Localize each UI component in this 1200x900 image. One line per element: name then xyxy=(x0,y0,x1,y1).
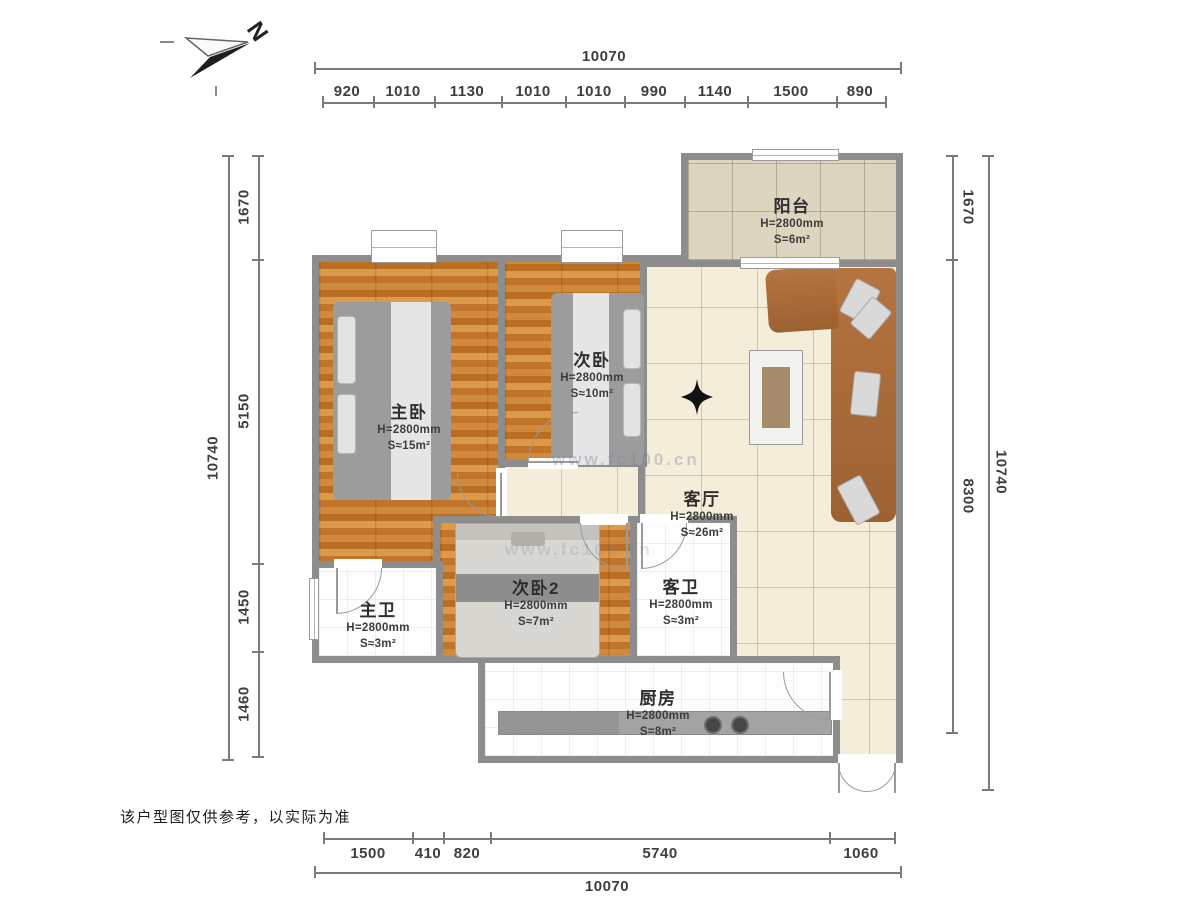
room-name: 次卧2 xyxy=(504,578,567,599)
dim-left-seg: 1450 xyxy=(236,589,253,624)
watermark-text: www.fc100.cn xyxy=(505,540,653,560)
dim-right-total: 10740 xyxy=(993,450,1010,494)
bath-window xyxy=(309,578,319,640)
room-label-balcony: 阳台 H=2800mm S=6m² xyxy=(760,196,823,248)
dim-bottom-seg: 1500 xyxy=(350,845,385,862)
room-area: S≈10m² xyxy=(560,387,623,403)
room-area: S≈3m² xyxy=(346,637,409,653)
room-label-master-bath: 主卫 H=2800mm S≈3m² xyxy=(346,600,409,652)
dim-top-seg: 1500 xyxy=(773,83,808,100)
disclaimer-text: 该户型图仅供参考，以实际为准 xyxy=(120,806,351,827)
room-name: 厨房 xyxy=(626,688,689,709)
room-height: H=2800mm xyxy=(760,217,823,233)
dim-top-seg: 1140 xyxy=(698,83,733,100)
dim-right-seg: 1670 xyxy=(960,189,977,224)
room-label-kitchen: 厨房 H=2800mm S=8m² xyxy=(626,688,689,740)
room-name: 客厅 xyxy=(670,489,733,510)
door-leaf xyxy=(829,672,831,720)
room-height: H=2800mm xyxy=(560,371,623,387)
door-leaf xyxy=(894,763,896,793)
balcony-window xyxy=(752,149,839,161)
dim-top-seg: 890 xyxy=(847,83,874,100)
ceiling-fan-icon xyxy=(677,377,717,417)
room-height: H=2800mm xyxy=(670,510,733,526)
room-area: S≈15m² xyxy=(377,439,440,455)
dim-bottom-seg: 5740 xyxy=(642,845,677,862)
dim-top-total: 10070 xyxy=(582,48,626,65)
wall-segment xyxy=(640,255,685,265)
compass-north-arrow-icon xyxy=(150,8,290,98)
door-leaf xyxy=(336,568,338,614)
room-label-bedroom-2: 次卧 H=2800mm S≈10m² xyxy=(560,350,623,402)
dim-top-seg: 1010 xyxy=(385,83,420,100)
room-name: 次卧 xyxy=(560,350,623,371)
balcony-sliding-door xyxy=(740,257,840,269)
room-height: H=2800mm xyxy=(346,621,409,637)
room-name: 主卧 xyxy=(377,402,440,423)
sofa-pillow xyxy=(850,371,881,418)
room-label-master-bedroom: 主卧 H=2800mm S≈15m² xyxy=(377,402,440,454)
door-gap-kitchen xyxy=(831,670,842,720)
sofa-top-arm xyxy=(765,266,839,334)
room-label-guest-bath: 客卫 H=2800mm S≈3m² xyxy=(649,577,712,629)
room-height: H=2800mm xyxy=(626,709,689,725)
dim-bottom-seg: 820 xyxy=(454,845,481,862)
dim-left-seg: 1670 xyxy=(236,189,253,224)
dim-left-seg: 1460 xyxy=(236,686,253,721)
bay-window xyxy=(371,230,437,263)
room-height: H=2800mm xyxy=(377,423,440,439)
room-area: S≈7m² xyxy=(504,615,567,631)
dim-top-seg: 1130 xyxy=(450,83,485,100)
dim-top-seg: 1010 xyxy=(576,83,611,100)
room-name: 客卫 xyxy=(649,577,712,598)
dim-right-seg: 8300 xyxy=(960,478,977,513)
room-name: 主卫 xyxy=(346,600,409,621)
dim-bottom-total: 10070 xyxy=(585,878,629,895)
floor-plan-canvas: N 10070 920 1010 1130 1010 1010 990 1140… xyxy=(0,0,1200,900)
watermark-text: www.fc100.cn xyxy=(552,450,700,470)
coffee-table xyxy=(749,350,803,445)
room-area: S≈26m² xyxy=(670,526,733,542)
dim-left-total: 10740 xyxy=(205,436,222,480)
stove-burner-icon xyxy=(731,716,749,734)
dim-bottom-seg: 1060 xyxy=(843,845,878,862)
dim-top-seg: 1010 xyxy=(515,83,550,100)
entry-door-arc xyxy=(838,763,867,792)
dim-top-seg: 990 xyxy=(641,83,668,100)
room-area: S=8m² xyxy=(626,725,689,741)
entry-door-arc xyxy=(867,763,896,792)
door-leaf xyxy=(838,763,840,793)
room-label-bedroom-3: 次卧2 H=2800mm S≈7m² xyxy=(504,578,567,630)
dim-top-seg: 920 xyxy=(334,83,361,100)
room-name: 阳台 xyxy=(760,196,823,217)
dim-bottom-seg: 410 xyxy=(415,845,442,862)
stove-burner-icon xyxy=(704,716,722,734)
bay-window xyxy=(561,230,623,263)
room-label-living: 客厅 H=2800mm S≈26m² xyxy=(670,489,733,541)
door-leaf xyxy=(500,473,502,518)
room-height: H=2800mm xyxy=(504,599,567,615)
dim-left-seg: 5150 xyxy=(236,393,253,428)
master-bed xyxy=(333,302,451,500)
room-height: H=2800mm xyxy=(649,598,712,614)
room-area: S≈3m² xyxy=(649,614,712,630)
room-area: S=6m² xyxy=(760,233,823,249)
